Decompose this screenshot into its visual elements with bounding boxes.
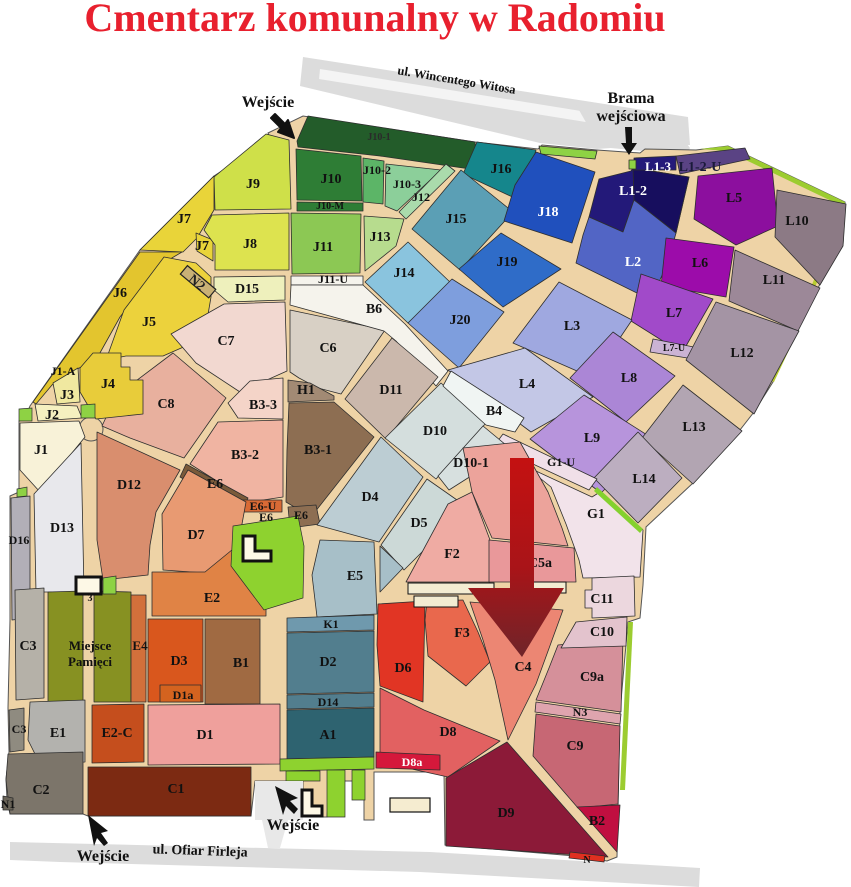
svg-text:B2: B2 (589, 814, 605, 829)
svg-text:L7: L7 (666, 306, 682, 321)
svg-text:C7: C7 (217, 334, 234, 349)
svg-text:wejściowa: wejściowa (596, 108, 665, 125)
svg-text:D1a: D1a (173, 688, 194, 702)
svg-text:B3-1: B3-1 (304, 443, 332, 458)
svg-text:F3: F3 (454, 626, 470, 641)
svg-text:J16: J16 (491, 162, 512, 177)
svg-text:B3-3: B3-3 (249, 398, 277, 413)
svg-text:J13: J13 (370, 230, 391, 245)
svg-text:K1: K1 (323, 617, 338, 631)
svg-text:J15: J15 (446, 212, 467, 227)
svg-text:D12: D12 (117, 478, 141, 493)
svg-text:J6: J6 (113, 286, 127, 301)
svg-text:D3: D3 (170, 654, 187, 669)
svg-text:Cmentarz komunalny w Radomiu: Cmentarz komunalny w Radomiu (84, 0, 665, 40)
svg-text:J10-3: J10-3 (393, 177, 421, 191)
svg-text:J7: J7 (195, 239, 209, 254)
svg-text:D11: D11 (379, 383, 402, 398)
svg-text:3: 3 (88, 593, 93, 604)
svg-text:L5: L5 (726, 191, 742, 206)
svg-text:B4: B4 (486, 404, 502, 419)
svg-text:C9a: C9a (580, 670, 604, 685)
svg-text:D5: D5 (410, 516, 427, 531)
svg-text:Wejście: Wejście (267, 817, 319, 834)
svg-text:L9: L9 (584, 431, 600, 446)
svg-text:L2: L2 (625, 255, 641, 270)
svg-text:L11: L11 (763, 273, 786, 288)
svg-text:Wejście: Wejście (77, 848, 129, 865)
svg-text:J10: J10 (321, 172, 342, 187)
svg-text:E1: E1 (50, 726, 66, 741)
svg-text:L12: L12 (730, 346, 753, 361)
svg-text:B1: B1 (233, 656, 249, 671)
svg-text:J19: J19 (497, 255, 518, 270)
svg-text:C3: C3 (19, 639, 36, 654)
svg-text:L4: L4 (519, 377, 535, 392)
svg-text:D1: D1 (196, 728, 213, 743)
svg-text:J11-U: J11-U (318, 272, 348, 286)
svg-text:J1: J1 (34, 443, 48, 458)
svg-text:E6: E6 (259, 510, 273, 524)
svg-text:D10-1: D10-1 (453, 456, 489, 471)
svg-text:G1: G1 (587, 507, 605, 522)
svg-text:E5: E5 (347, 569, 363, 584)
svg-text:D15: D15 (235, 282, 259, 297)
svg-text:C2: C2 (32, 783, 49, 798)
svg-text:J10-1: J10-1 (367, 132, 390, 143)
svg-text:L7-U: L7-U (663, 343, 685, 354)
svg-text:D9: D9 (497, 806, 514, 821)
svg-text:J8: J8 (243, 237, 257, 252)
svg-text:J3: J3 (60, 388, 74, 403)
svg-text:J5: J5 (142, 315, 156, 330)
svg-text:C8: C8 (157, 397, 174, 412)
svg-text:J20: J20 (450, 313, 471, 328)
svg-text:C4: C4 (514, 660, 531, 675)
svg-text:L1-2: L1-2 (619, 184, 647, 199)
svg-text:D7: D7 (187, 528, 204, 543)
svg-text:F2: F2 (444, 547, 460, 562)
svg-text:J7: J7 (177, 212, 191, 227)
svg-text:Pamięci: Pamięci (68, 654, 112, 669)
svg-text:C6: C6 (319, 341, 336, 356)
svg-text:J18: J18 (538, 205, 559, 220)
svg-text:D4: D4 (361, 490, 378, 505)
svg-text:N: N (583, 855, 591, 866)
svg-text:J11: J11 (313, 240, 333, 255)
svg-text:L8: L8 (621, 371, 637, 386)
svg-text:C10: C10 (590, 625, 614, 640)
svg-text:E2: E2 (204, 591, 220, 606)
svg-text:J12: J12 (412, 190, 430, 204)
svg-text:L13: L13 (682, 420, 705, 435)
svg-text:D13: D13 (50, 521, 74, 536)
svg-text:D14: D14 (318, 695, 339, 709)
svg-text:G1-U: G1-U (547, 455, 575, 469)
svg-text:L1-2-U: L1-2-U (679, 160, 722, 175)
svg-text:D16: D16 (9, 533, 30, 547)
svg-text:D2: D2 (319, 655, 336, 670)
svg-text:L14: L14 (632, 472, 655, 487)
svg-text:N1: N1 (1, 797, 16, 811)
svg-text:Brama: Brama (607, 90, 654, 107)
svg-text:L10: L10 (785, 214, 808, 229)
svg-text:D10: D10 (423, 424, 447, 439)
svg-text:J4: J4 (101, 377, 115, 392)
svg-text:L1-3: L1-3 (645, 159, 672, 174)
svg-text:C3: C3 (12, 722, 27, 736)
svg-text:D8a: D8a (402, 755, 423, 769)
svg-text:Wejście: Wejście (242, 94, 294, 111)
svg-text:Miejsce: Miejsce (69, 638, 112, 653)
svg-text:C9: C9 (566, 739, 583, 754)
svg-text:L6: L6 (692, 256, 708, 271)
svg-text:E6: E6 (294, 508, 308, 522)
svg-text:B6: B6 (366, 302, 382, 317)
svg-text:D8: D8 (439, 725, 456, 740)
svg-text:H1: H1 (297, 383, 315, 398)
svg-text:E4: E4 (132, 638, 148, 653)
svg-text:E6: E6 (207, 477, 223, 492)
svg-text:L3: L3 (564, 319, 580, 334)
svg-text:B3-2: B3-2 (231, 448, 259, 463)
svg-text:D6: D6 (394, 661, 411, 676)
svg-text:C1: C1 (167, 782, 184, 797)
svg-text:J14: J14 (394, 266, 415, 281)
svg-text:N3: N3 (573, 705, 588, 719)
svg-text:C11: C11 (590, 592, 613, 607)
svg-text:J2: J2 (45, 408, 59, 423)
svg-text:E2-C: E2-C (101, 726, 132, 741)
svg-text:A1: A1 (319, 728, 336, 743)
svg-text:J10-M: J10-M (316, 201, 344, 212)
svg-text:J1-A: J1-A (51, 364, 76, 378)
svg-text:J10-2: J10-2 (363, 163, 391, 177)
svg-text:J9: J9 (246, 177, 260, 192)
